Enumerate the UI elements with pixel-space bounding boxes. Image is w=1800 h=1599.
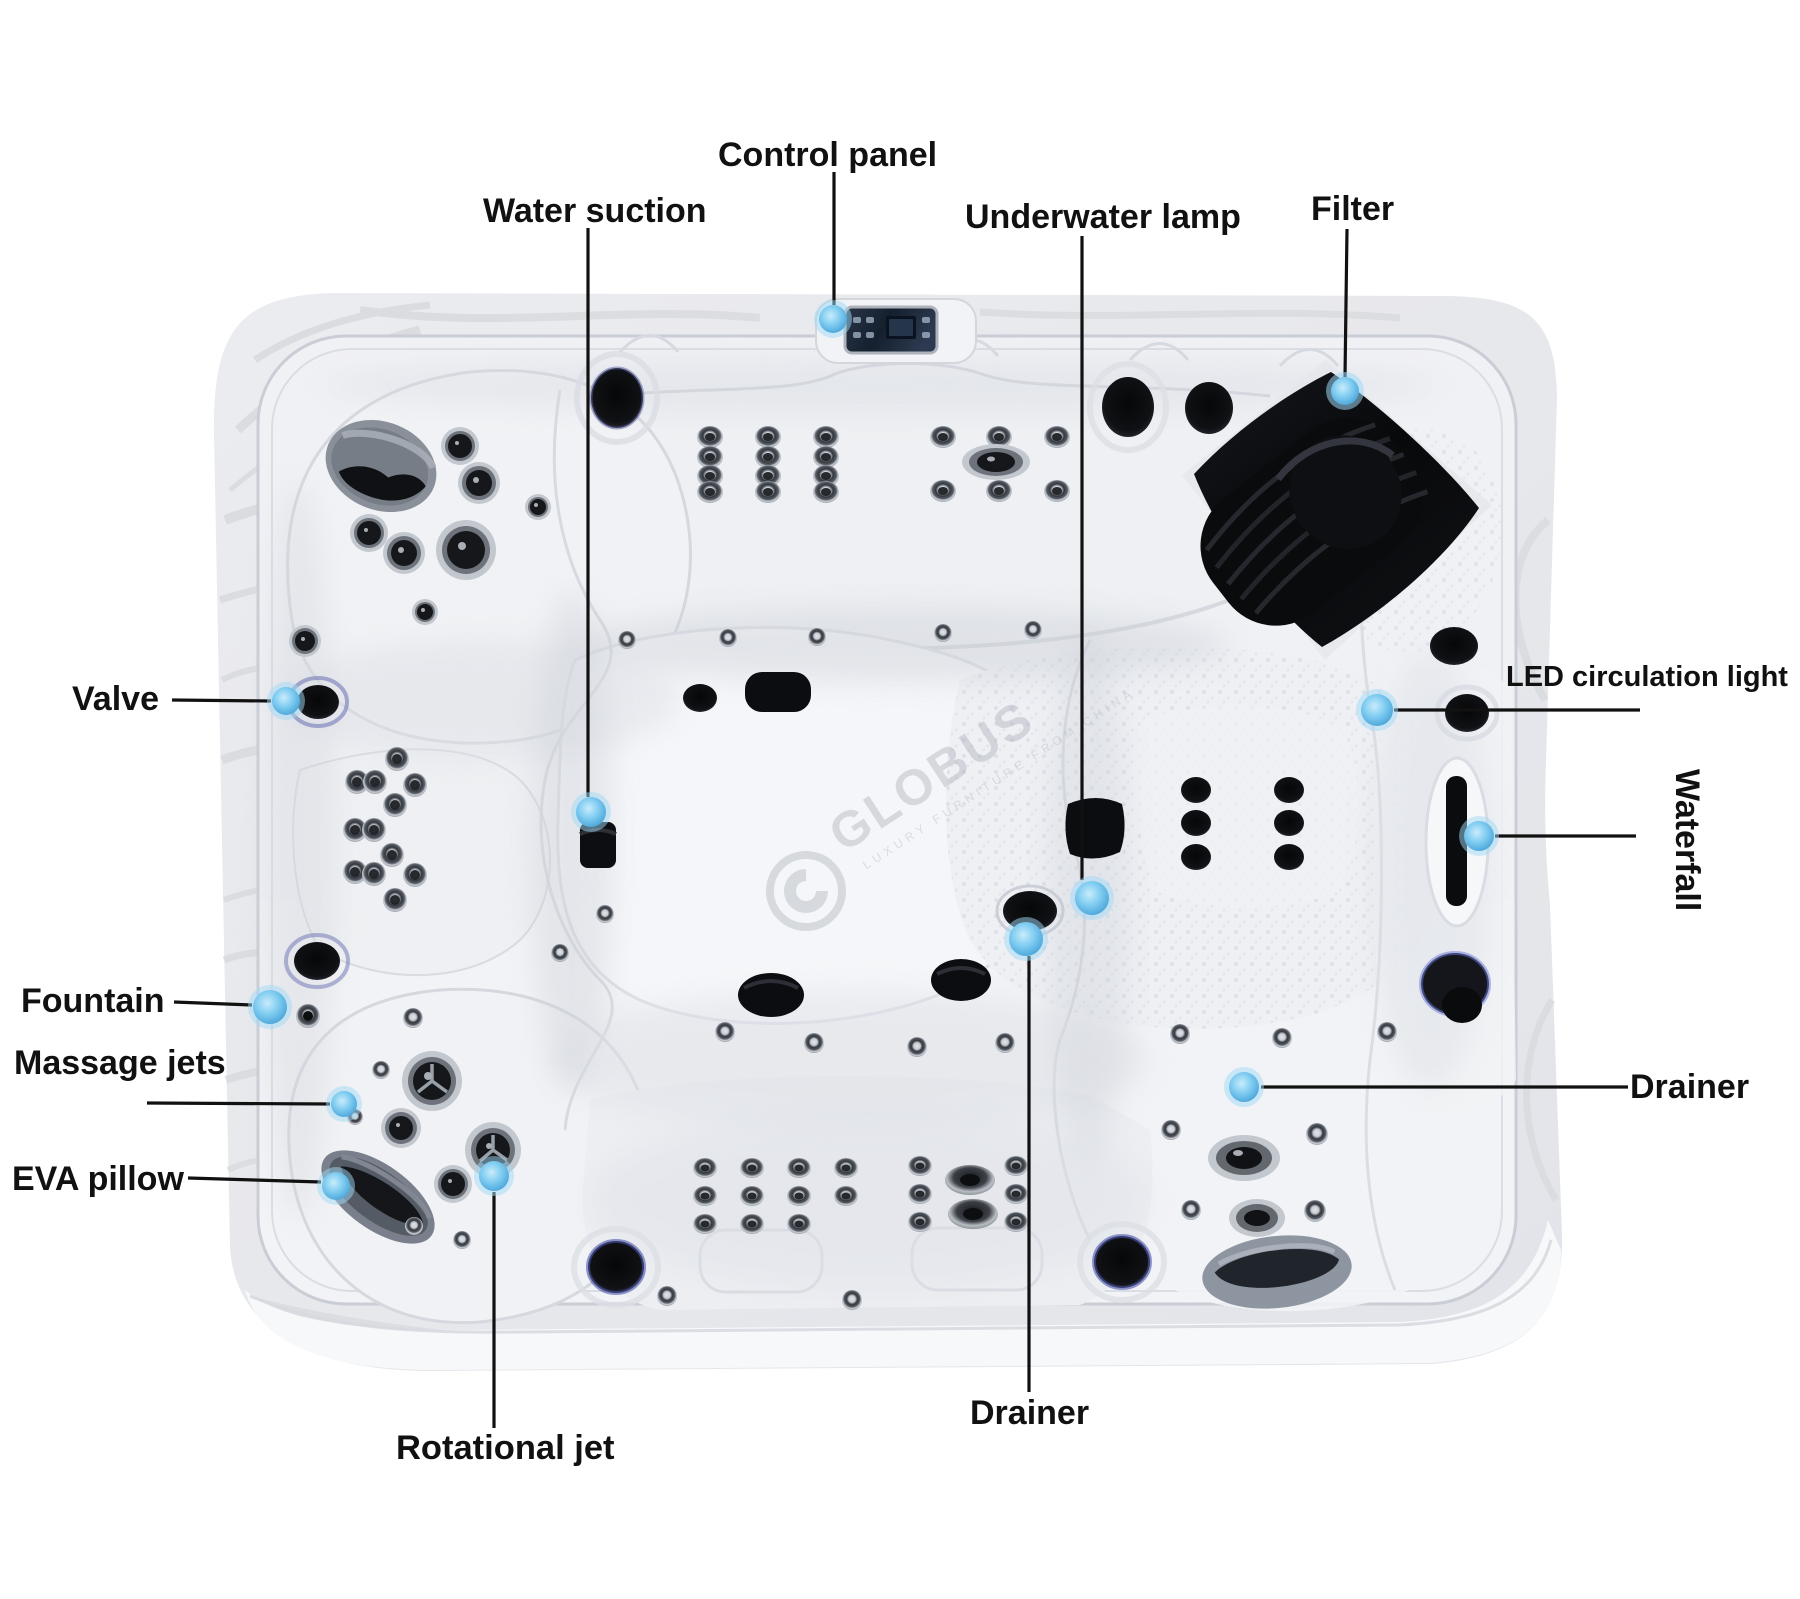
svg-text:Waterfall: Waterfall [1668,769,1706,911]
svg-text:Filter: Filter [1311,190,1394,228]
svg-text:Control panel: Control panel [718,136,937,174]
svg-text:Underwater lamp: Underwater lamp [965,198,1241,236]
svg-text:Fountain: Fountain [21,982,165,1020]
svg-text:Drainer: Drainer [970,1394,1089,1432]
svg-text:Valve: Valve [72,680,159,718]
svg-text:Massage jets: Massage jets [14,1044,226,1082]
svg-text:Water suction: Water suction [483,192,707,230]
svg-text:Rotational jet: Rotational jet [396,1429,615,1467]
svg-text:EVA pillow: EVA pillow [12,1160,184,1198]
svg-text:LED circulation light: LED circulation light [1506,661,1788,693]
svg-text:Drainer: Drainer [1630,1068,1749,1106]
